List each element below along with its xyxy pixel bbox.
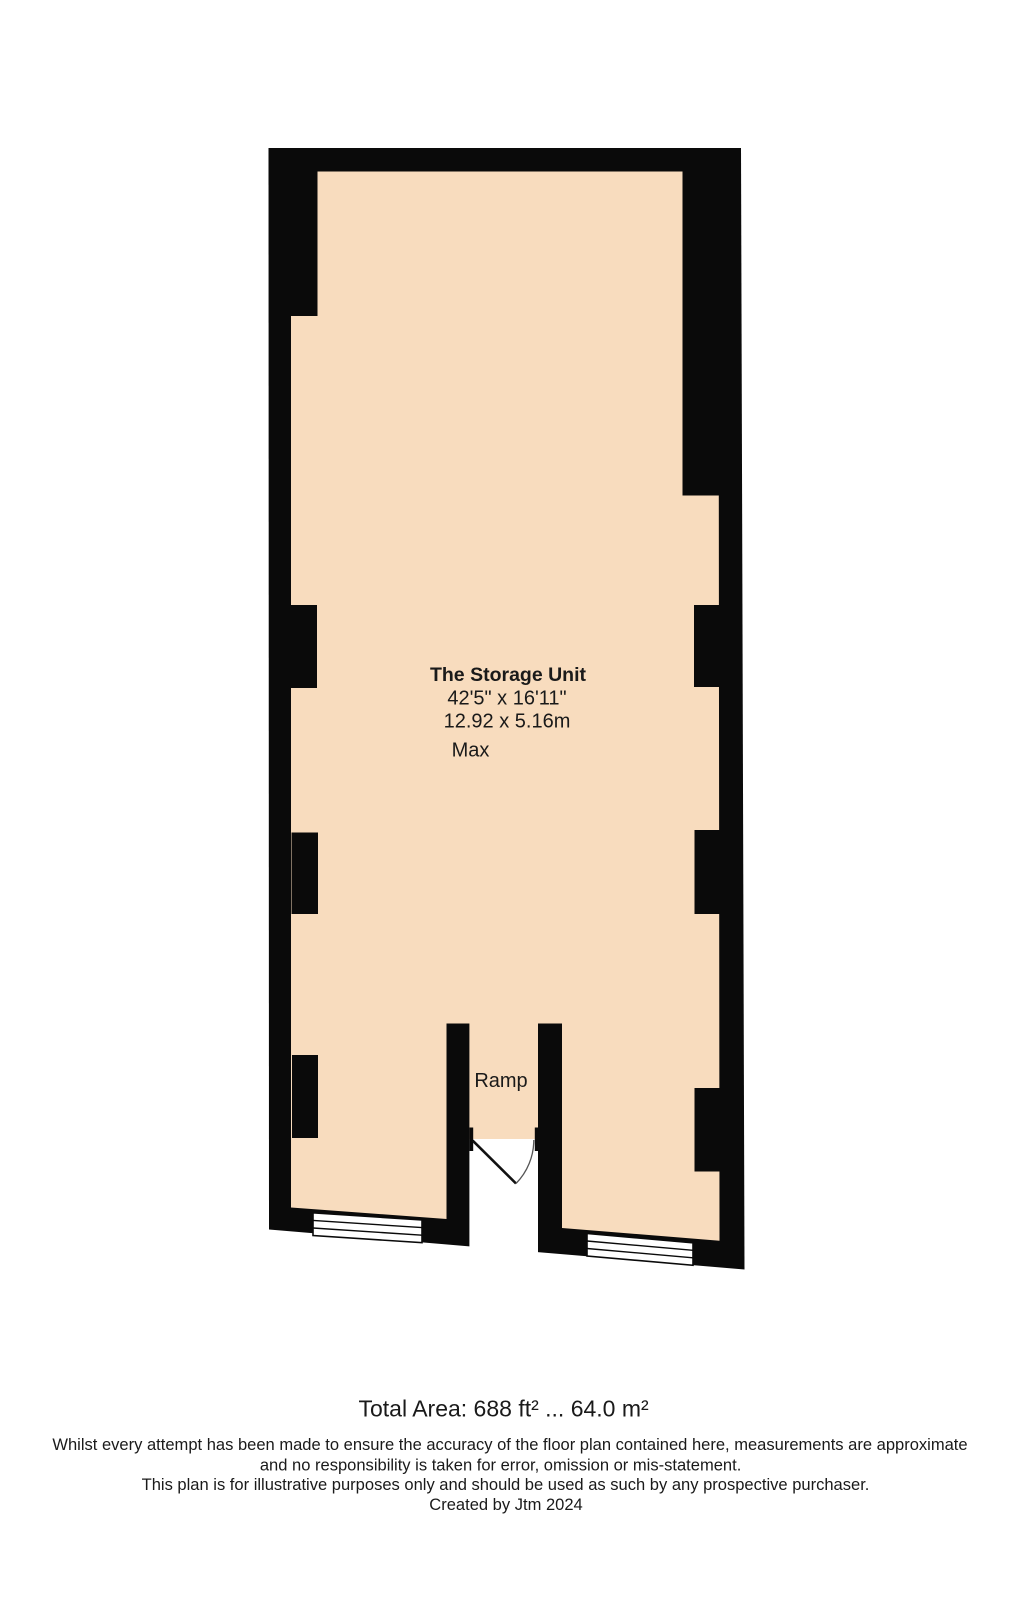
svg-text:Max: Max xyxy=(452,740,490,762)
svg-text:Created by Jtm 2024: Created by Jtm 2024 xyxy=(429,1495,582,1514)
svg-text:Whilst every attempt has been: Whilst every attempt has been made to en… xyxy=(52,1435,967,1454)
svg-text:The Storage Unit: The Storage Unit xyxy=(430,664,587,686)
svg-text:12.92 x 5.16m: 12.92 x 5.16m xyxy=(444,711,571,733)
svg-text:42'5" x 16'11": 42'5" x 16'11" xyxy=(447,688,566,710)
svg-text:and no responsibility is taken: and no responsibility is taken for error… xyxy=(260,1456,741,1475)
svg-text:Total Area: 688 ft² ... 64.0 m: Total Area: 688 ft² ... 64.0 m² xyxy=(358,1396,649,1422)
svg-text:This plan is for illustrative: This plan is for illustrative purposes o… xyxy=(142,1475,870,1494)
svg-text:Ramp: Ramp xyxy=(474,1070,527,1092)
